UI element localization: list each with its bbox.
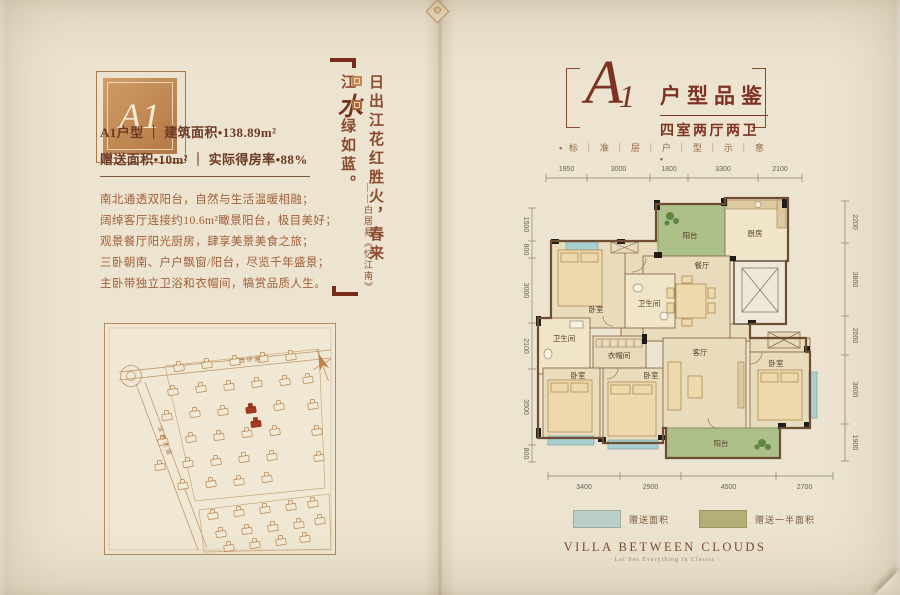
page-title: 户型品鉴 [660,80,768,116]
room-label-balcony-bottom: 阳台 [714,438,729,448]
monogram-number: 1 [619,78,635,114]
dimension-label: 1950 [559,166,575,173]
page-edge-right [894,0,900,595]
bay-window [566,242,598,250]
room-label-cloakroom: 衣帽间 [608,350,631,360]
page-subtitle: 四室两厅两卫 [660,116,768,140]
poem-ornament-bottom-arm [332,286,336,296]
room-label-bath: 卫生间 [638,298,661,308]
unit-monogram: A1 [585,52,639,114]
legend-swatch-gift [573,510,621,528]
center-fold [424,0,456,595]
dimension-label: 3000 [611,166,627,173]
feature-list: 南北通透双阳台，自然与生活温暖相融； 阔绰客厅连接约10.6m²瞰景阳台，极目美… [100,190,345,295]
feature-line: 南北通透双阳台，自然与生活温暖相融； [100,190,345,211]
spec-line-rate: 赠送面积•10m² ｜ 实际得房率•88% [100,149,350,168]
room-label-dining: 餐厅 [695,261,710,270]
spec-block: A1户型 ｜ 建筑面积•138.89m² 赠送面积•10m² ｜ 实际得房率•8… [100,122,350,176]
page-edge-left [0,0,8,595]
legend-item: 赠送面积 [573,510,669,528]
header-title-block: 户型品鉴 四室两厅两卫 [660,80,768,140]
poem-attribution: ——白居易《忆江南》 [362,183,375,298]
bed-icon [608,382,656,436]
seal-stamp-icon [352,76,362,86]
dimension-label: 1800 [661,166,677,173]
dimension-label: 4500 [721,484,737,491]
floorplan: 19503000180033002100 3400290045002700 15… [518,156,858,501]
dimension-label: 2000 [851,328,858,344]
room-label-bedroom: 卧室 [644,370,659,380]
divider-line [100,176,310,177]
legend: 赠送面积 赠送一半面积 [573,510,815,528]
room-label-bath: 卫生间 [553,333,576,343]
poem-ornament-top-arm [352,58,356,68]
dimension-label: 3400 [576,484,592,491]
footer-tagline: · Let See Everything In Classic · [540,557,790,563]
dimension-chain-top: 19503000180033002100 [546,166,802,182]
elevator-icon [734,261,786,324]
header-bracket-left [566,68,580,128]
brochure-spread: A1 A1户型 ｜ 建筑面积•138.89m² 赠送面积•10m² ｜ 实际得房… [0,0,900,595]
page-curl [874,569,900,595]
bed-icon [558,250,602,306]
closet-rail-icon [596,339,642,347]
legend-label: 赠送一半面积 [755,513,815,526]
dimension-label: 800 [522,244,529,256]
dimension-label: 2100 [522,338,529,354]
room-label-bedroom: 卧室 [571,370,586,380]
dimension-label: 2100 [772,166,788,173]
bed-icon [758,370,802,420]
dimension-label: 3000 [522,283,529,299]
dimension-label: 3800 [851,272,858,288]
room-label-kitchen: 厨房 [748,228,763,238]
footer-title: VILLA BETWEEN CLOUDS [540,540,790,555]
dimension-label: 2200 [851,214,858,230]
legend-item: 赠送一半面积 [699,510,815,528]
site-map: 西环路 滨水大道 [103,322,337,556]
bed-icon [548,380,592,432]
legend-swatch-half-gift [699,510,747,528]
dimension-label: 3300 [715,166,731,173]
feature-line: 三卧朝南、户户飘窗/阳台，尽览千年盛景； [100,253,345,274]
dimension-chain-right: 22003800200036001900 [841,201,858,461]
monogram-letter: A [585,49,623,117]
plan-body: 阳台 厨房 餐厅 卫生间 卧室 卫生间 衣帽间 卧室 卧室 客厅 卧室 阳台 [536,198,817,458]
feature-line: 主卧带独立卫浴和衣帽间，犒赏品质人生。 [100,274,345,295]
feature-line: 阔绰客厅连接约10.6m²瞰景阳台，极目美好； [100,211,345,232]
poem-part: 绿如蓝。 [339,118,355,194]
dimension-label: 3600 [851,382,858,398]
feature-line: 观景餐厅阳光厨房，肆享美景美食之旅； [100,232,345,253]
dimension-label: 2700 [797,484,813,491]
dimension-label: 2900 [643,484,659,491]
room-label-bedroom: 卧室 [769,358,784,368]
dimension-label: 800 [522,448,529,460]
platform-hatch [768,332,800,348]
room-label-living: 客厅 [693,347,708,357]
dimension-chain-left: 1500800300021003500800 [522,208,536,462]
dimension-label: 3500 [522,399,529,415]
legend-label: 赠送面积 [629,513,669,526]
room-label-balcony-top: 阳台 [683,230,698,240]
footer: VILLA BETWEEN CLOUDS · Let See Everythin… [540,540,790,563]
dimension-label: 1900 [851,435,858,451]
spec-line-area: A1户型 ｜ 建筑面积•138.89m² [100,122,350,141]
dimension-label: 1500 [522,217,529,233]
dimension-chain-bottom: 3400290045002700 [548,472,833,491]
bay-window [608,440,658,449]
room-label-bedroom: 卧室 [589,304,604,314]
seal-stamp-icon [352,100,362,110]
